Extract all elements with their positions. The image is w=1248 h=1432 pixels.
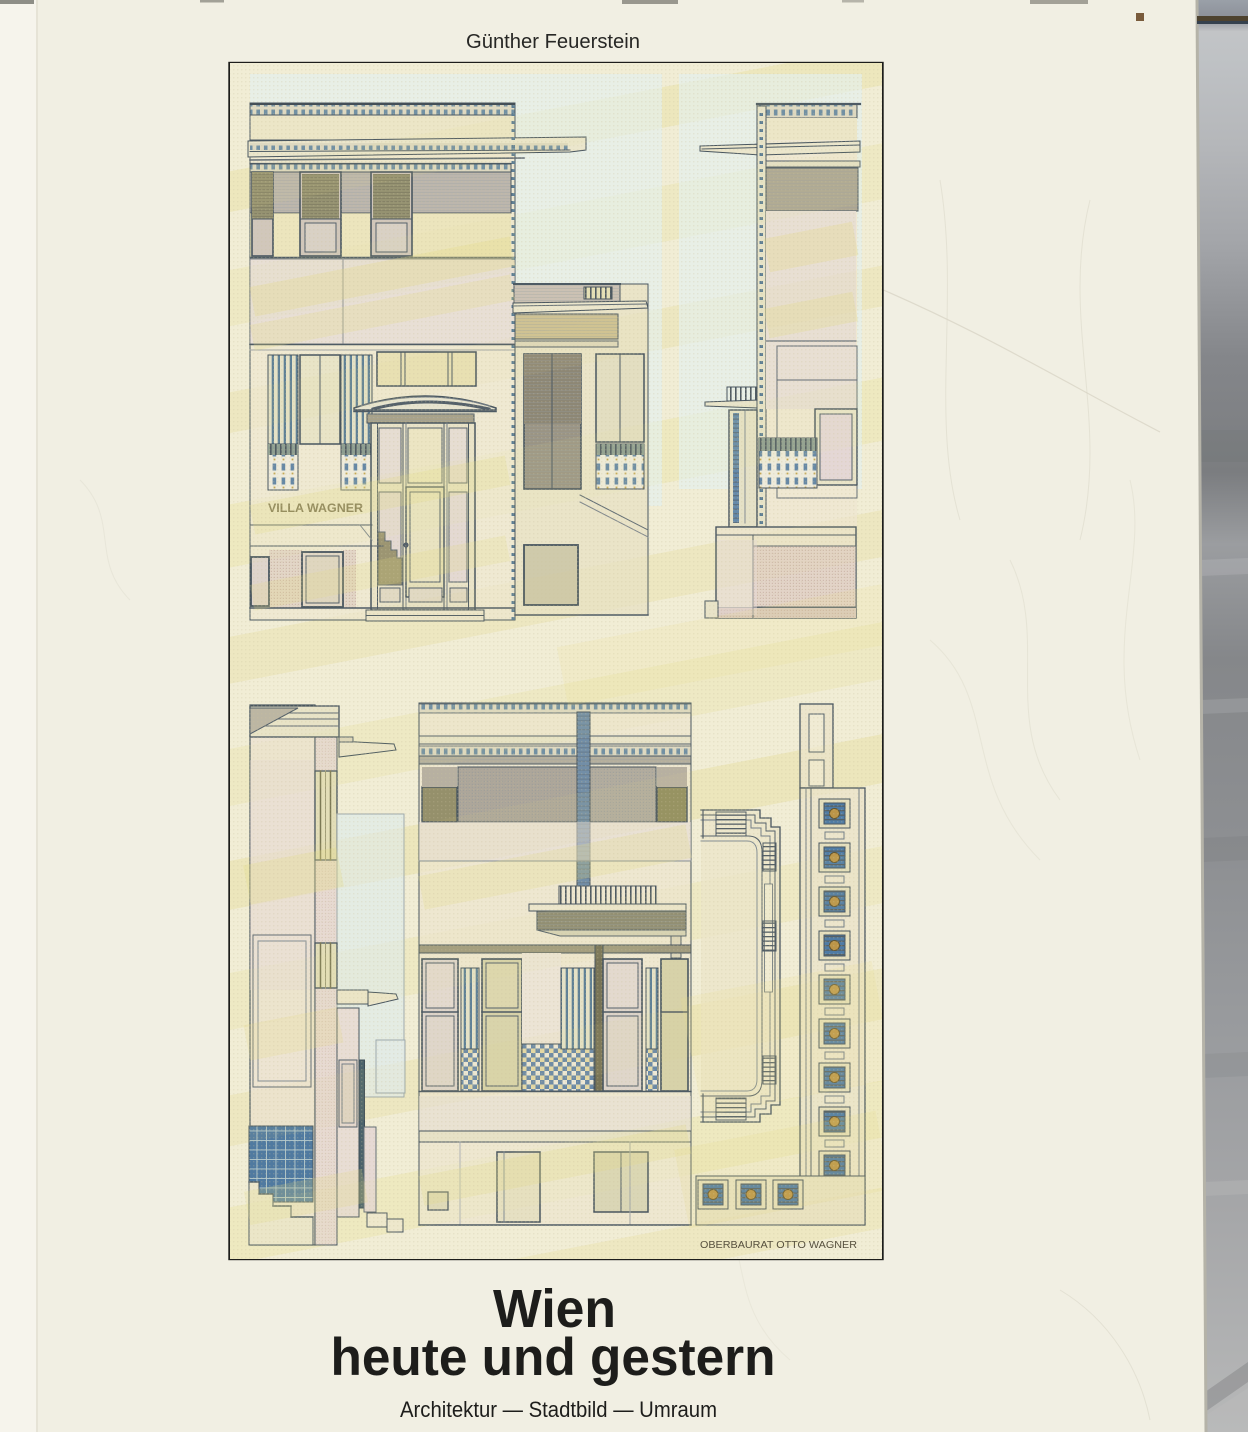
svg-text:Architektur — Stadtbild — Umra: Architektur — Stadtbild — Umraum [400, 1397, 717, 1422]
svg-text:OBERBAURAT OTTO WAGNER: OBERBAURAT OTTO WAGNER [700, 1240, 857, 1251]
svg-text:Günther Feuerstein: Günther Feuerstein [466, 31, 640, 53]
svg-text:heute und gestern: heute und gestern [331, 1328, 776, 1387]
